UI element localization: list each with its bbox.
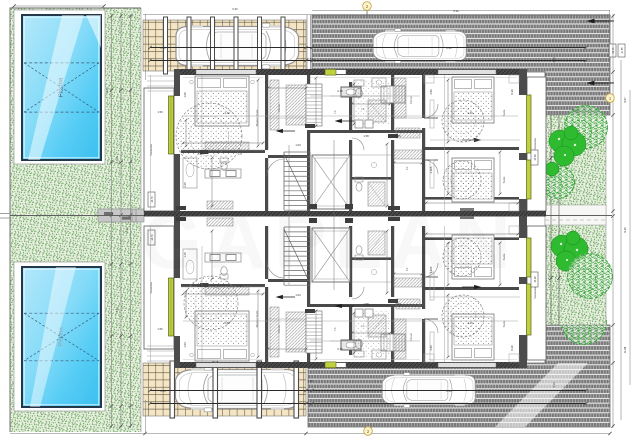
svg-text:0.30: 0.30 bbox=[307, 57, 313, 61]
svg-text:1.50: 1.50 bbox=[157, 110, 163, 114]
svg-text:6.20: 6.20 bbox=[160, 389, 166, 393]
svg-text:Suite: Suite bbox=[502, 176, 506, 183]
svg-text:Suite: Suite bbox=[502, 320, 506, 327]
svg-text:0.30: 0.30 bbox=[232, 7, 238, 11]
svg-text:1.50: 1.50 bbox=[157, 327, 163, 331]
svg-text:2.925: 2.925 bbox=[429, 166, 433, 173]
svg-text:0.30: 0.30 bbox=[307, 379, 313, 383]
svg-text:Varanda: Varanda bbox=[533, 138, 537, 150]
svg-text:1: 1 bbox=[609, 96, 612, 101]
svg-text:1.25: 1.25 bbox=[183, 182, 187, 188]
svg-text:4.40: 4.40 bbox=[224, 111, 230, 115]
svg-text:1.58: 1.58 bbox=[363, 302, 369, 306]
svg-text:6.20: 6.20 bbox=[160, 46, 166, 50]
svg-text:2: 2 bbox=[367, 429, 370, 434]
svg-text:15.26: 15.26 bbox=[534, 154, 537, 161]
svg-text:Suite: Suite bbox=[502, 109, 506, 116]
svg-text:Closet: Closet bbox=[409, 333, 413, 341]
svg-text:4.40: 4.40 bbox=[467, 111, 473, 115]
svg-text:1.5: 1.5 bbox=[238, 152, 242, 156]
svg-text:4.40: 4.40 bbox=[105, 87, 109, 93]
svg-text:GAPLAN: GAPLAN bbox=[141, 197, 518, 285]
svg-text:2.95: 2.95 bbox=[197, 152, 203, 156]
svg-text:2.35: 2.35 bbox=[395, 302, 401, 306]
svg-text:1.50: 1.50 bbox=[183, 342, 187, 348]
svg-text:Closet: Closet bbox=[409, 96, 413, 104]
svg-text:11.88: 11.88 bbox=[623, 346, 627, 353]
svg-text:3.10: 3.10 bbox=[552, 382, 556, 388]
svg-text:1.00: 1.00 bbox=[295, 293, 301, 297]
svg-text:6.30: 6.30 bbox=[453, 9, 459, 13]
svg-text:15.26: 15.26 bbox=[534, 276, 537, 283]
svg-text:2.80: 2.80 bbox=[429, 89, 433, 95]
svg-text:8.40: 8.40 bbox=[446, 46, 452, 50]
svg-text:6.30: 6.30 bbox=[510, 89, 514, 95]
svg-text:3.10: 3.10 bbox=[552, 57, 556, 63]
svg-text:Closet: Closet bbox=[277, 104, 281, 112]
svg-text:0.15: 0.15 bbox=[337, 89, 343, 93]
svg-text:Master Suite: Master Suite bbox=[255, 310, 259, 327]
svg-text:4.40: 4.40 bbox=[467, 321, 473, 325]
svg-text:2: 2 bbox=[366, 4, 369, 9]
svg-text:Cir.: Cir. bbox=[405, 166, 409, 170]
svg-text:2.35: 2.35 bbox=[395, 134, 401, 138]
svg-text:21.88: 21.88 bbox=[622, 47, 624, 53]
svg-text:Master Suite: Master Suite bbox=[255, 109, 259, 126]
svg-text:9.57: 9.57 bbox=[623, 97, 627, 103]
svg-text:1.50: 1.50 bbox=[183, 92, 187, 98]
svg-text:0.15: 0.15 bbox=[337, 347, 343, 351]
svg-text:Varanda: Varanda bbox=[533, 287, 537, 299]
svg-text:I.S.: I.S. bbox=[333, 327, 337, 331]
svg-text:29.76: 29.76 bbox=[613, 47, 615, 53]
svg-text:Closet: Closet bbox=[277, 325, 281, 333]
svg-text:8.20: 8.20 bbox=[446, 389, 452, 393]
svg-text:Varanda: Varanda bbox=[149, 144, 153, 156]
svg-text:2.30: 2.30 bbox=[125, 227, 129, 233]
svg-text:9.35: 9.35 bbox=[623, 227, 627, 233]
svg-text:2.80: 2.80 bbox=[429, 345, 433, 351]
svg-text:1.115: 1.115 bbox=[115, 156, 119, 163]
svg-text:6.30: 6.30 bbox=[510, 345, 514, 351]
svg-text:I.S.: I.S. bbox=[333, 110, 337, 114]
svg-text:5.05: 5.05 bbox=[224, 321, 230, 325]
svg-text:1.00: 1.00 bbox=[295, 143, 301, 147]
svg-text:1.58: 1.58 bbox=[363, 134, 369, 138]
svg-text:4.40: 4.40 bbox=[115, 307, 119, 313]
